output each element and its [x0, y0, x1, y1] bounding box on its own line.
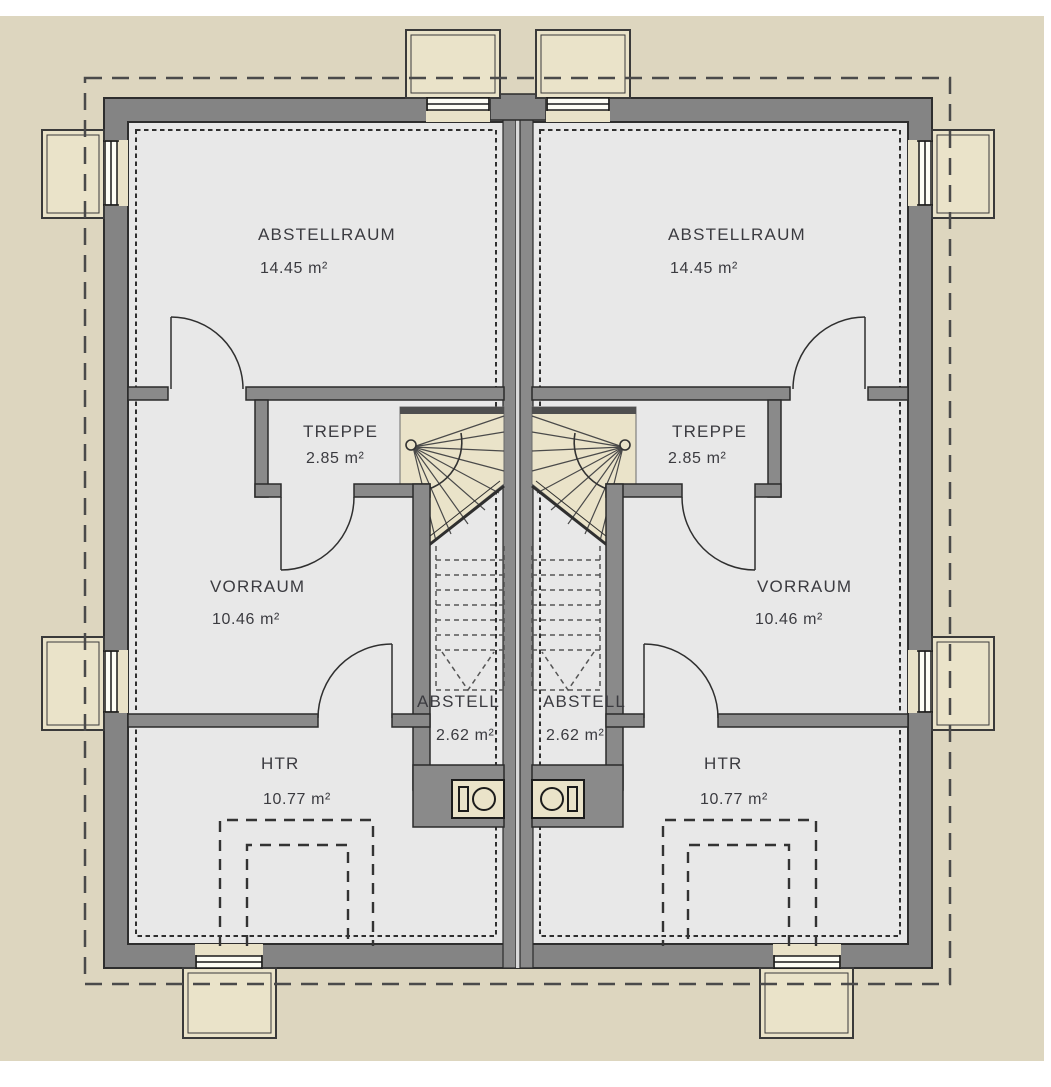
room-label: ABSTELL	[543, 692, 626, 711]
room-area: 2.85 m²	[306, 450, 365, 467]
room-label: HTR	[704, 754, 743, 773]
flue-circle	[473, 788, 495, 810]
vent-slot	[459, 787, 468, 811]
room-label: VORRAUM	[210, 577, 305, 596]
window-bottom	[195, 944, 263, 969]
paper-margin-top	[0, 0, 1051, 16]
room-area: 10.46 m²	[212, 611, 280, 628]
paper-margin-bottom	[0, 1061, 1051, 1087]
light-well-bottom	[183, 968, 276, 1038]
room-area: 10.77 m²	[700, 791, 768, 808]
wall-abstell-left	[413, 484, 430, 790]
wall-abstellraum-divider	[246, 387, 504, 400]
wall-treppe-left	[255, 400, 268, 497]
room-label: HTR	[261, 754, 300, 773]
room-area: 14.45 m²	[260, 260, 328, 277]
room-label: TREPPE	[303, 422, 378, 441]
stair-top-edge	[400, 407, 504, 414]
chimney-block	[413, 765, 504, 827]
wall-treppe-step	[255, 484, 281, 497]
window-left-top	[103, 140, 128, 206]
floor-plan-page: ABSTELLRAUM 14.45 m² ABSTELLRAUM 14.45 m…	[0, 0, 1051, 1087]
room-label: TREPPE	[672, 422, 747, 441]
room-area: 2.85 m²	[668, 450, 727, 467]
light-well-left-top	[42, 130, 104, 218]
room-label: ABSTELLRAUM	[668, 225, 806, 244]
room-area: 2.62 m²	[436, 727, 495, 744]
light-well-left-middle	[42, 637, 104, 730]
room-area: 10.77 m²	[263, 791, 331, 808]
wall-htr-pier	[392, 714, 430, 727]
window-top	[426, 97, 490, 122]
floor-plan-canvas: ABSTELLRAUM 14.45 m² ABSTELLRAUM 14.45 m…	[0, 0, 1051, 1087]
stair-newel-post	[406, 440, 416, 450]
paper-margin-right	[1044, 0, 1051, 1087]
room-area: 14.45 m²	[670, 260, 738, 277]
room-label: VORRAUM	[757, 577, 852, 596]
wall-abstellraum-stub	[128, 387, 168, 400]
room-area: 10.46 m²	[755, 611, 823, 628]
room-label: ABSTELL	[417, 692, 500, 711]
window-left-middle	[103, 650, 128, 713]
room-label: ABSTELLRAUM	[258, 225, 396, 244]
room-area: 2.62 m²	[546, 727, 605, 744]
light-well-top	[406, 30, 500, 98]
wall-htr-divider	[128, 714, 318, 727]
